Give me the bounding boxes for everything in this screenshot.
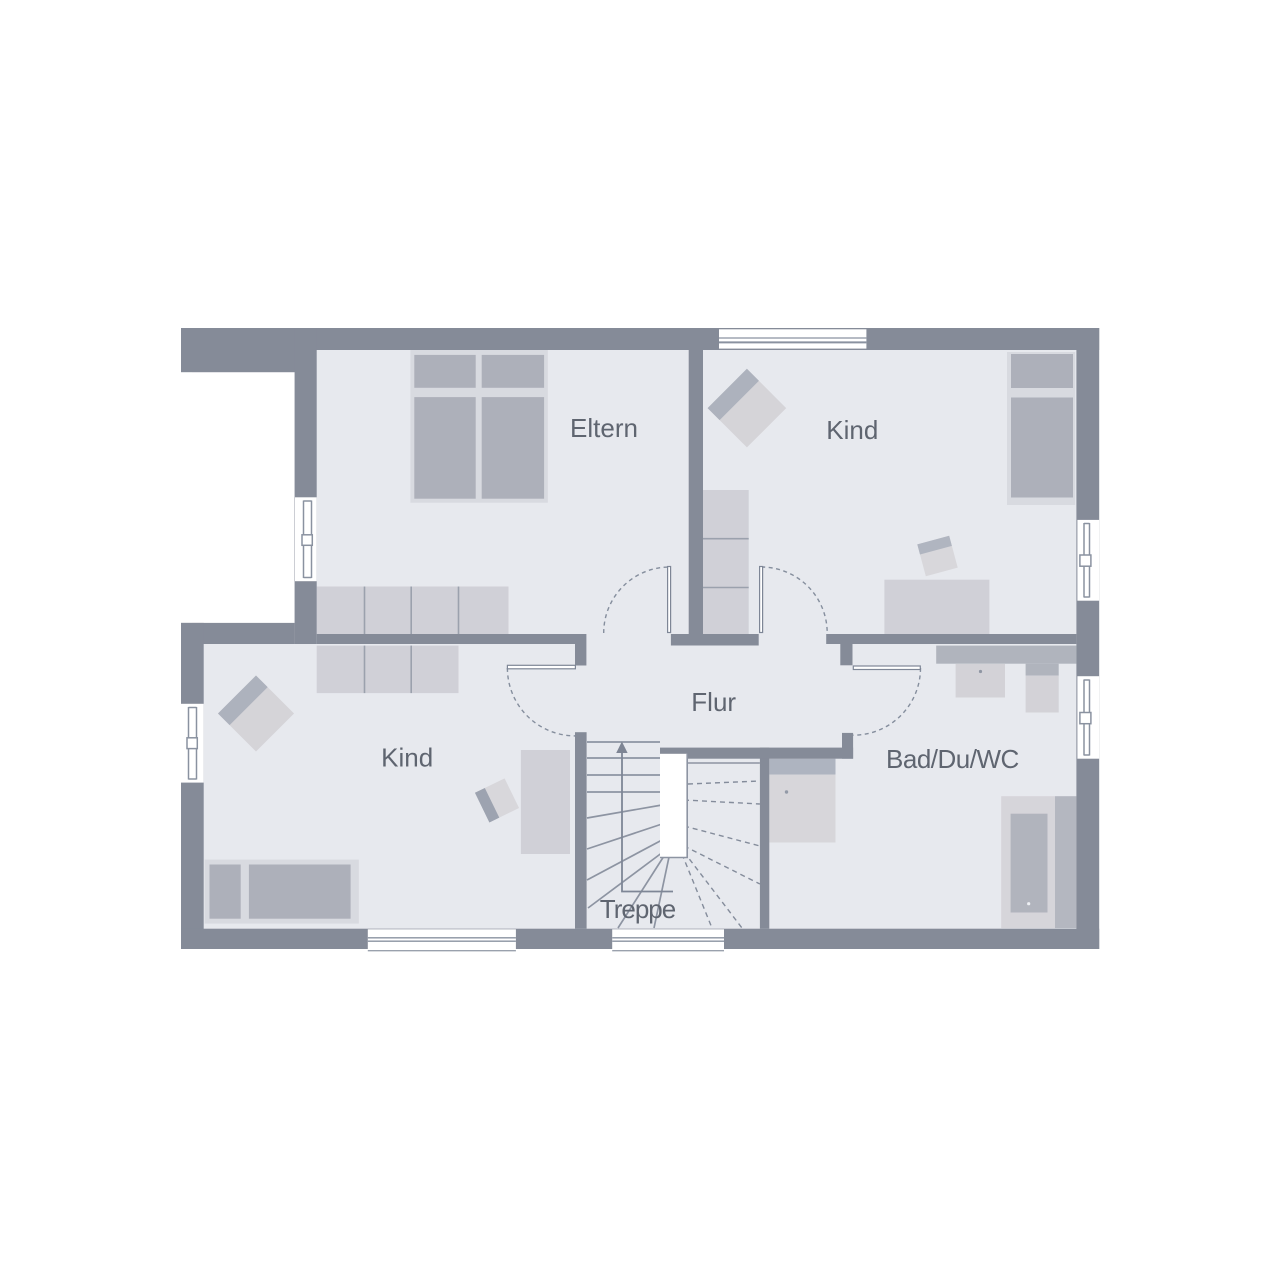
- svg-text:Kind: Kind: [826, 415, 878, 445]
- svg-text:Bad/Du/WC: Bad/Du/WC: [886, 744, 1019, 774]
- svg-text:Kind: Kind: [381, 743, 433, 773]
- svg-text:Flur: Flur: [691, 687, 736, 717]
- svg-text:Eltern: Eltern: [570, 413, 638, 443]
- svg-text:Treppe: Treppe: [600, 894, 676, 924]
